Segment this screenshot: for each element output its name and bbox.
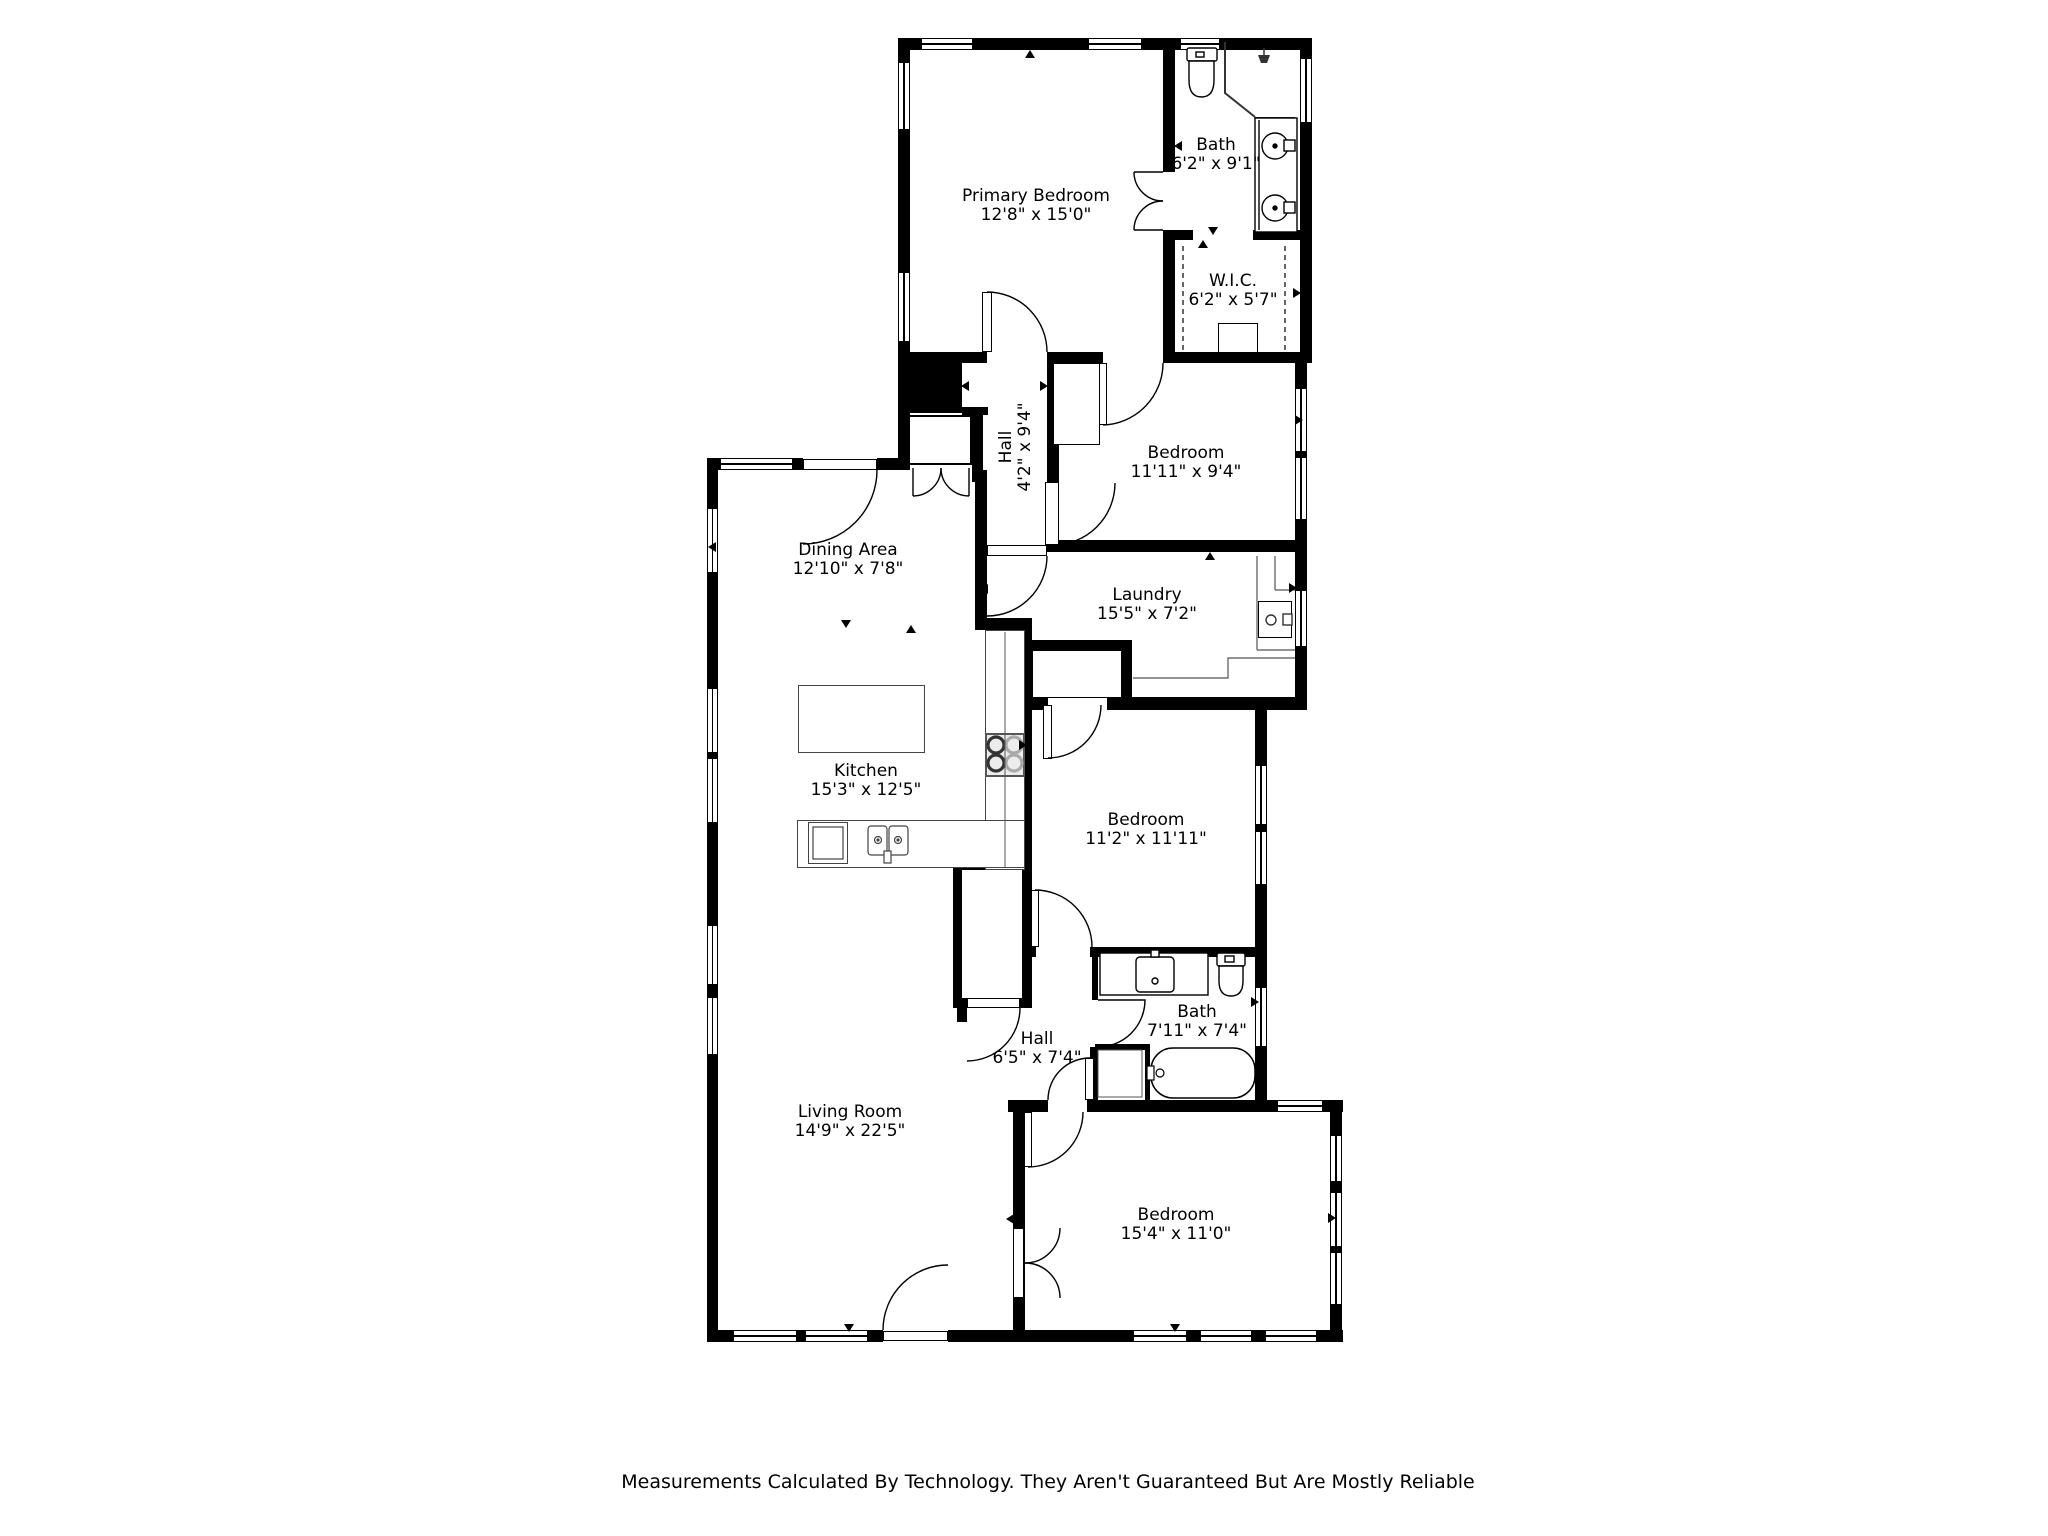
room-name: Dining Area xyxy=(793,541,904,560)
room-name: Bedroom xyxy=(1131,444,1242,463)
room-name: Bath xyxy=(1147,1003,1247,1022)
room-label-bedroom-bottom: Bedroom 15'4" x 11'0" xyxy=(1121,1206,1232,1244)
room-label-dining-area: Dining Area 12'10" x 7'8" xyxy=(793,541,904,579)
measure-arrow xyxy=(1295,415,1303,425)
measure-arrow xyxy=(1235,699,1245,707)
disclaimer-text: Measurements Calculated By Technology. T… xyxy=(0,1471,2048,1493)
vanity-sink xyxy=(1100,950,1208,995)
shower xyxy=(1225,42,1295,118)
room-label-primary-bedroom: Primary Bedroom 12'8" x 15'0" xyxy=(962,187,1110,225)
room-dims: 11'11" x 9'4" xyxy=(1131,463,1242,482)
kitchen-sinks xyxy=(813,826,908,863)
room-dims: 11'2" x 11'11" xyxy=(1085,830,1207,849)
room-name: Bedroom xyxy=(1121,1206,1232,1225)
measure-arrow xyxy=(708,1212,716,1222)
room-name: Living Room xyxy=(795,1103,906,1122)
measure-arrow xyxy=(906,625,916,633)
room-label-bath-lower: Bath 7'11" x 7'4" xyxy=(1147,1003,1247,1041)
bathtub xyxy=(1098,1048,1255,1098)
room-dims: 4'2" x 9'4" xyxy=(1016,402,1035,491)
room-name: Primary Bedroom xyxy=(962,187,1110,206)
measure-arrow xyxy=(1293,288,1301,298)
room-dims: 14'9" x 22'5" xyxy=(795,1122,906,1141)
room-dims: 6'5" x 7'4" xyxy=(992,1049,1081,1068)
floor-plan-page: Primary Bedroom 12'8" x 15'0" Bath 6'2" … xyxy=(0,0,2048,1536)
plan-linework xyxy=(0,0,2048,1536)
measure-arrow xyxy=(1170,1324,1180,1332)
double-vanity xyxy=(1255,118,1297,232)
room-dims: 15'4" x 11'0" xyxy=(1121,1225,1232,1244)
room-label-hall-upper: Hall 4'2" x 9'4" xyxy=(997,402,1035,491)
measure-arrow xyxy=(1251,997,1259,1007)
room-dims: 7'11" x 7'4" xyxy=(1147,1022,1247,1041)
room-label-wic: W.I.C. 6'2" x 5'7" xyxy=(1188,272,1277,310)
toilet xyxy=(1217,953,1245,996)
room-dims: 6'2" x 9'1" xyxy=(1171,155,1260,174)
door-arcs xyxy=(803,172,1163,1330)
room-label-bath-upper: Bath 6'2" x 9'1" xyxy=(1171,136,1260,174)
room-dims: 15'5" x 7'2" xyxy=(1097,605,1197,624)
measure-arrow xyxy=(1198,240,1208,248)
room-label-bedroom-mid: Bedroom 11'11" x 9'4" xyxy=(1131,444,1242,482)
measure-arrow xyxy=(1040,381,1048,391)
room-name: Hall xyxy=(997,402,1016,491)
measure-arrow xyxy=(844,1324,854,1332)
measure-arrow xyxy=(841,620,851,628)
room-label-bedroom-center: Bedroom 11'2" x 11'11" xyxy=(1085,811,1207,849)
room-dims: 12'8" x 15'0" xyxy=(962,206,1110,225)
measure-arrow xyxy=(1019,740,1027,750)
room-name: Laundry xyxy=(1097,586,1197,605)
measure-arrow xyxy=(980,584,988,594)
room-label-hall-lower: Hall 6'5" x 7'4" xyxy=(992,1030,1081,1068)
toilet xyxy=(1187,48,1217,97)
room-dims: 6'2" x 5'7" xyxy=(1188,291,1277,310)
room-label-laundry: Laundry 15'5" x 7'2" xyxy=(1097,586,1197,624)
measure-arrow xyxy=(1289,583,1297,593)
room-name: Hall xyxy=(992,1030,1081,1049)
room-name: Bedroom xyxy=(1085,811,1207,830)
room-dims: 15'3" x 12'5" xyxy=(811,781,922,800)
room-name: Bath xyxy=(1171,136,1260,155)
measure-arrow xyxy=(1328,1213,1336,1223)
measure-arrow xyxy=(1025,50,1035,58)
measure-arrow xyxy=(1208,227,1218,235)
room-label-kitchen: Kitchen 15'3" x 12'5" xyxy=(811,762,922,800)
room-dims: 12'10" x 7'8" xyxy=(793,560,904,579)
room-label-living-room: Living Room 14'9" x 22'5" xyxy=(795,1103,906,1141)
stove-burners xyxy=(988,632,1022,868)
room-name: W.I.C. xyxy=(1188,272,1277,291)
measure-arrow xyxy=(1172,1104,1182,1112)
washer-detail xyxy=(1266,614,1292,625)
measure-arrow xyxy=(1017,1214,1025,1224)
measure-arrow xyxy=(708,542,716,552)
measure-arrow xyxy=(1205,552,1215,560)
room-name: Kitchen xyxy=(811,762,922,781)
measure-arrow xyxy=(899,192,907,202)
measure-arrow xyxy=(961,381,969,391)
measure-arrow xyxy=(1006,1214,1014,1224)
